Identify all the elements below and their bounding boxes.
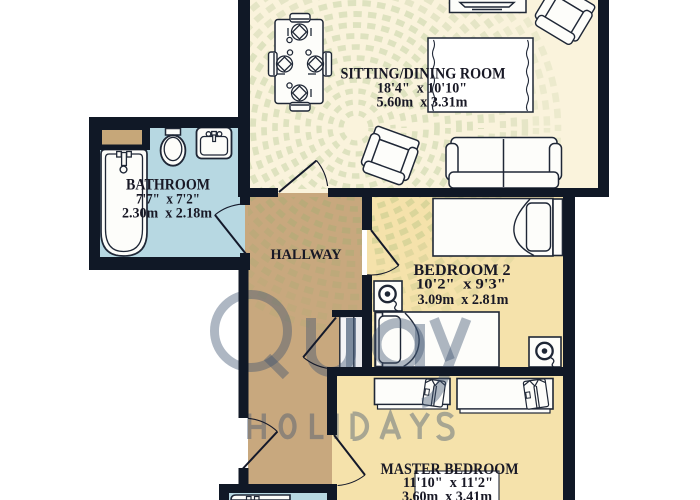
svg-text:5.60m x 3.31m: 5.60m x 3.31m — [377, 94, 469, 110]
svg-text:HALLWAY: HALLWAY — [271, 246, 342, 263]
svg-text:3.09m x 2.81m: 3.09m x 2.81m — [418, 292, 510, 308]
svg-text:10'2" x 9'3": 10'2" x 9'3" — [416, 277, 506, 293]
svg-text:2.30m x 2.18m: 2.30m x 2.18m — [122, 205, 213, 221]
svg-text:3.60m x 3.41m: 3.60m x 3.41m — [402, 489, 493, 500]
